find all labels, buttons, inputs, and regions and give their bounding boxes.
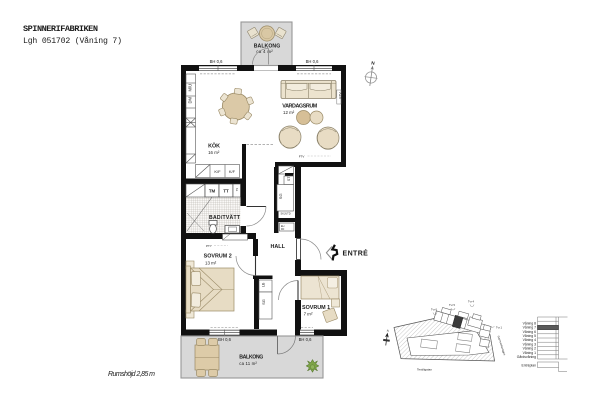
svg-text:SOVRUM 1: SOVRUM 1 bbox=[302, 305, 330, 311]
svg-text:Textiligatan: Textiligatan bbox=[417, 368, 432, 372]
svg-text:K/F: K/F bbox=[214, 169, 221, 174]
svg-text:Entréplan: Entréplan bbox=[521, 364, 536, 368]
svg-text:ST: ST bbox=[287, 176, 291, 181]
svg-text:LB: LB bbox=[262, 282, 266, 287]
svg-text:VARDAGSRUM: VARDAGSRUM bbox=[282, 103, 318, 109]
svg-text:ca 4 m²: ca 4 m² bbox=[256, 49, 273, 54]
svg-text:Tvr 6: Tvr 6 bbox=[431, 308, 437, 312]
svg-text:Gårdsvåning: Gårdsvåning bbox=[517, 355, 536, 359]
svg-text:Tvr 1: Tvr 1 bbox=[496, 326, 502, 330]
svg-text:BH 0,6: BH 0,6 bbox=[299, 337, 312, 342]
svg-text:12 m²: 12 m² bbox=[283, 110, 295, 115]
svg-text:TT: TT bbox=[223, 189, 229, 194]
svg-text:PTY: PTY bbox=[206, 244, 212, 248]
svg-text:ca 11 m²: ca 11 m² bbox=[239, 361, 257, 366]
svg-text:13 m²: 13 m² bbox=[205, 261, 217, 266]
svg-text:KÖK: KÖK bbox=[208, 143, 220, 150]
svg-text:BAD/TVÄTT: BAD/TVÄTT bbox=[209, 214, 241, 221]
svg-text:N: N bbox=[387, 328, 390, 332]
svg-text:HALL: HALL bbox=[271, 244, 286, 250]
svg-text:SG: SG bbox=[261, 299, 266, 305]
svg-text:BH 0,6: BH 0,6 bbox=[210, 59, 223, 64]
svg-text:16 m²: 16 m² bbox=[208, 150, 220, 155]
svg-text:TM: TM bbox=[209, 189, 216, 194]
svg-text:DM: DM bbox=[188, 96, 193, 103]
svg-text:ETV: ETV bbox=[339, 92, 343, 99]
svg-text:K/F: K/F bbox=[229, 169, 236, 174]
svg-text:TS: TS bbox=[235, 188, 239, 192]
svg-text:Lgh 051702 (Våning 7): Lgh 051702 (Våning 7) bbox=[23, 36, 122, 46]
svg-text:M/U: M/U bbox=[188, 84, 193, 92]
svg-text:SG: SG bbox=[278, 193, 283, 199]
svg-text:FTV: FTV bbox=[299, 155, 305, 159]
svg-text:SPINNERIFABRIKEN: SPINNERIFABRIKEN bbox=[23, 24, 98, 34]
svg-text:BH 0,6: BH 0,6 bbox=[218, 337, 231, 342]
svg-text:SOVRUM 2: SOVRUM 2 bbox=[204, 254, 232, 260]
svg-text:N: N bbox=[371, 60, 376, 66]
svg-text:7 m²: 7 m² bbox=[304, 312, 313, 317]
svg-text:BH 0,6: BH 0,6 bbox=[306, 59, 319, 64]
svg-text:Rumshöjd 2,85 m: Rumshöjd 2,85 m bbox=[108, 371, 155, 378]
svg-text:Tvr 5: Tvr 5 bbox=[449, 303, 455, 307]
svg-text:Tvr 4: Tvr 4 bbox=[468, 300, 474, 304]
svg-text:SKJUTD: SKJUTD bbox=[281, 212, 291, 216]
svg-text:FD: FD bbox=[281, 228, 284, 231]
svg-text:BALKONG: BALKONG bbox=[239, 355, 263, 361]
svg-text:Garnverksvägen: Garnverksvägen bbox=[497, 335, 507, 356]
svg-text:ENTRÉ: ENTRÉ bbox=[343, 248, 369, 257]
